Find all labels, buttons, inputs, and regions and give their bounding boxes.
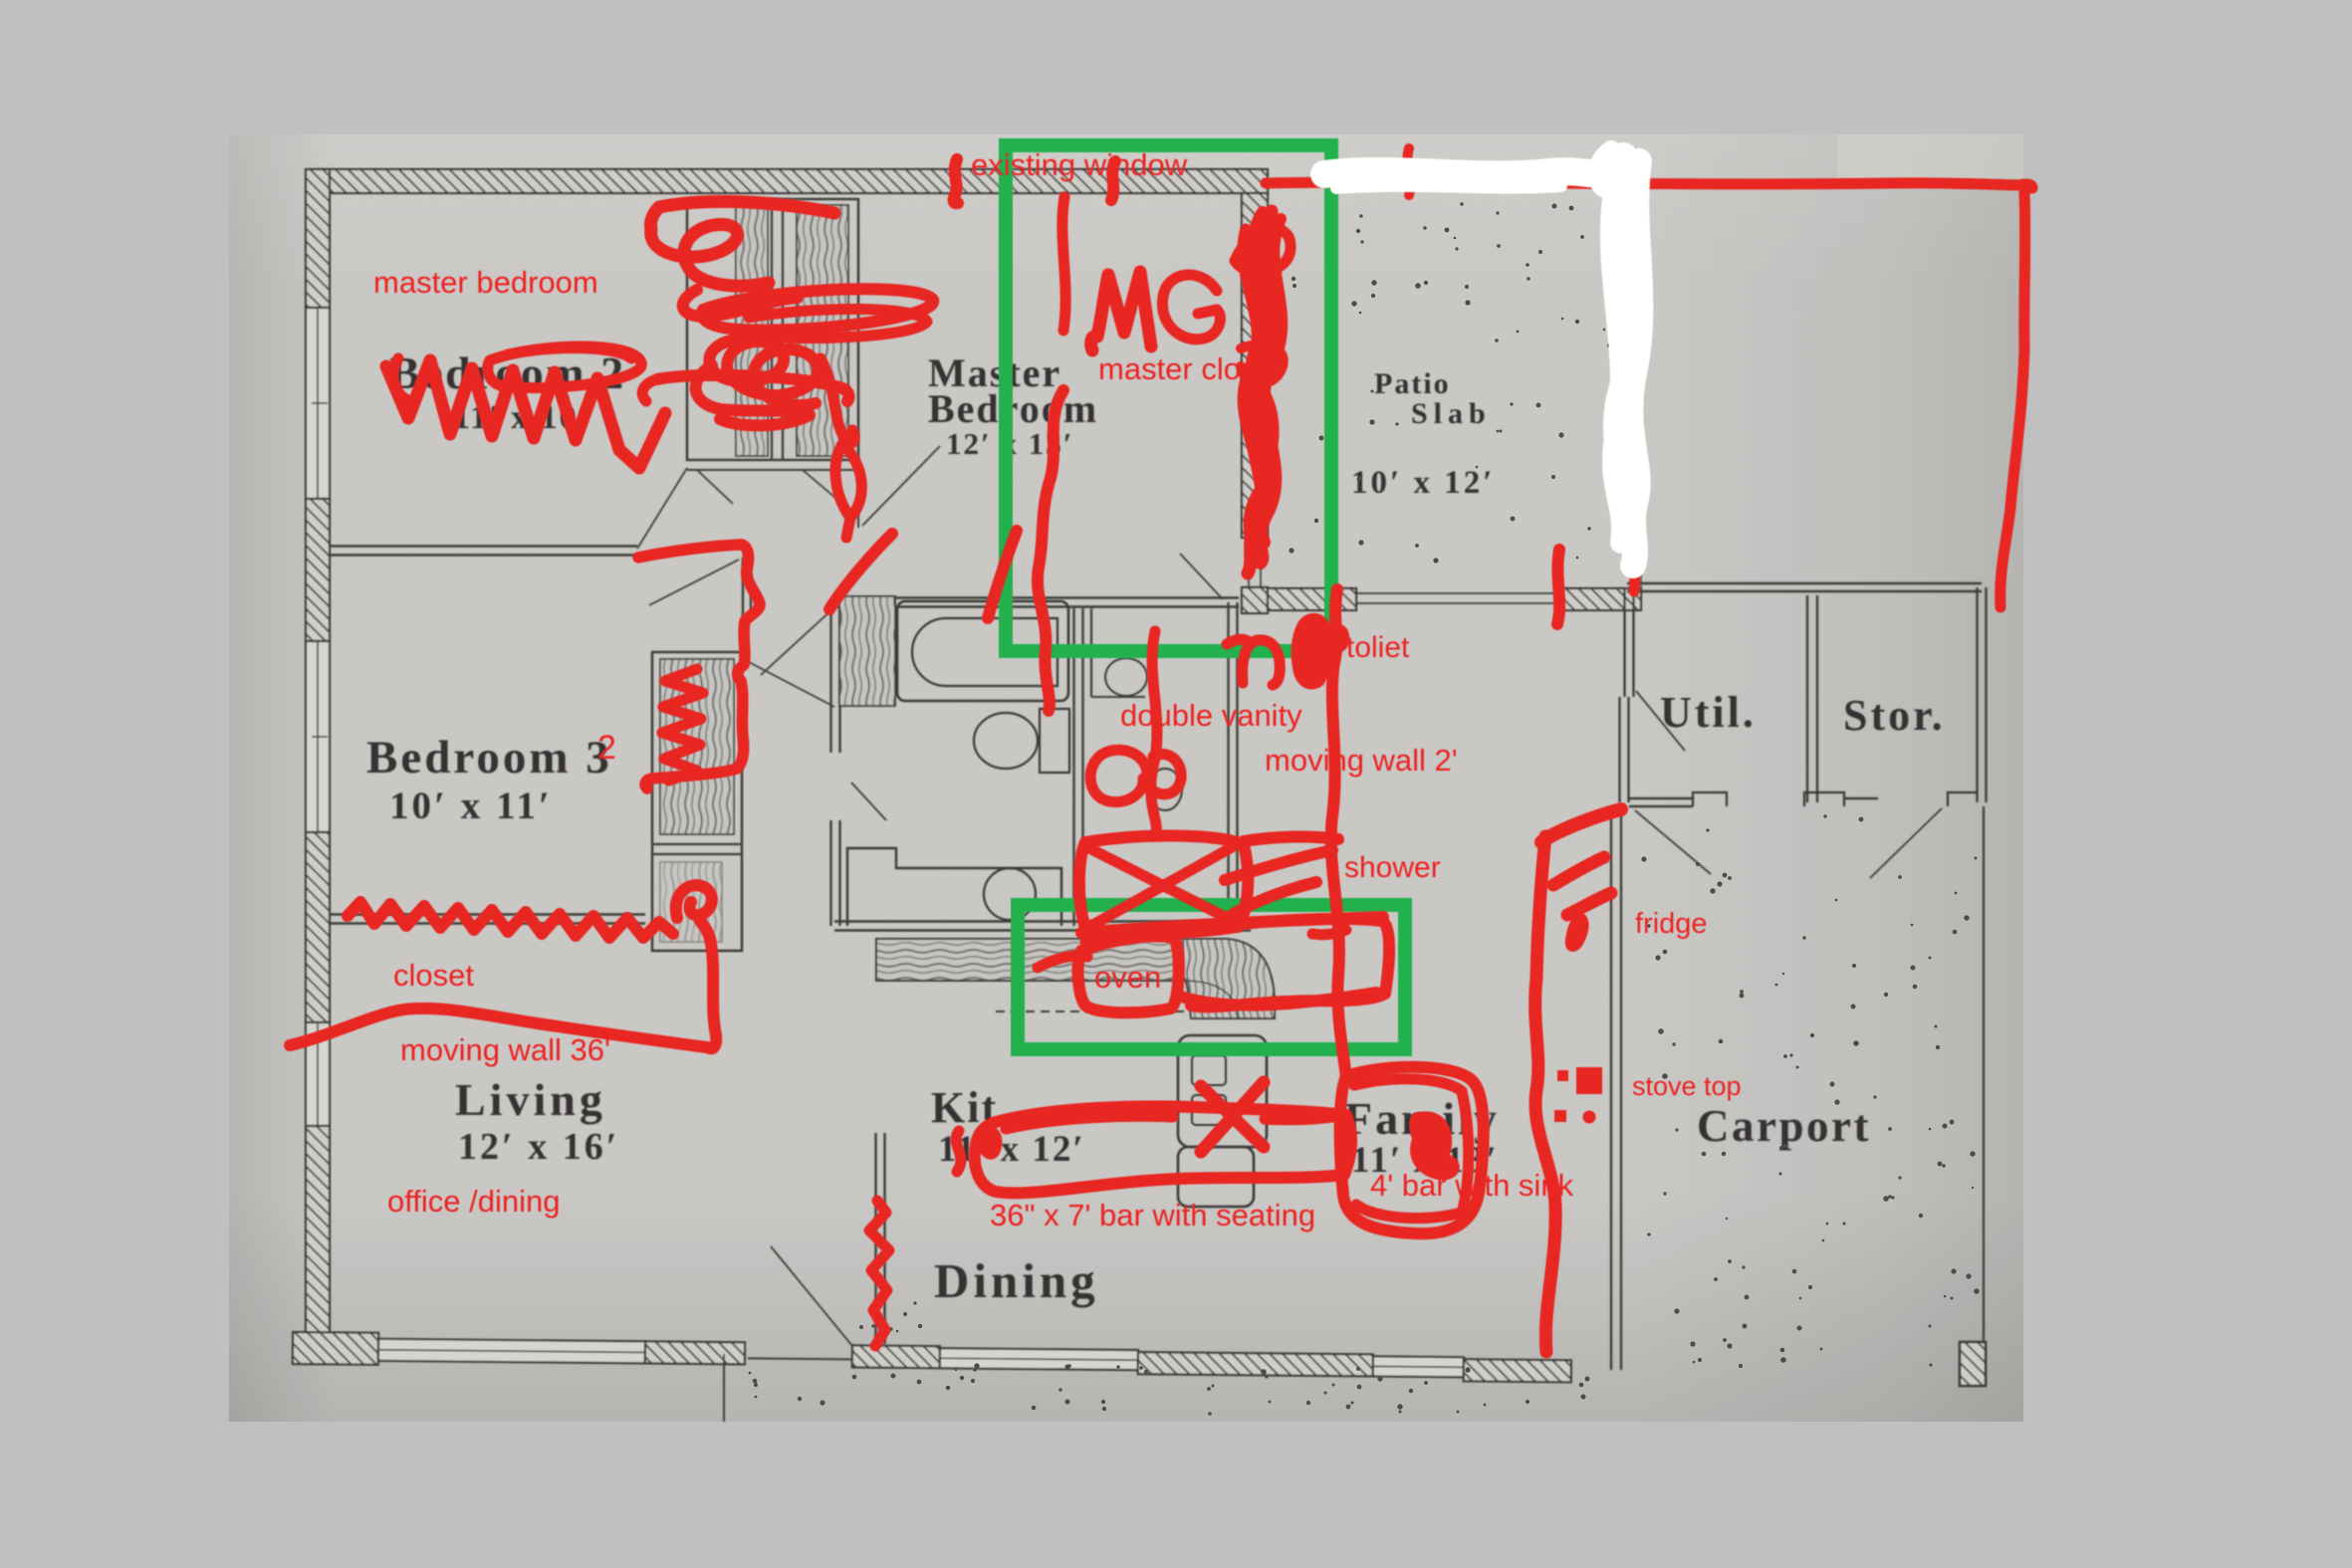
svg-text:Bedroom 3: Bedroom 3 bbox=[366, 732, 612, 784]
svg-text:Slab: Slab bbox=[1411, 397, 1492, 430]
svg-text:10′ x 11′: 10′ x 11′ bbox=[389, 784, 553, 827]
svg-text:10′ x 12′: 10′ x 12′ bbox=[1351, 465, 1496, 501]
svg-text:Dining: Dining bbox=[934, 1253, 1099, 1308]
svg-text:Util.: Util. bbox=[1660, 688, 1757, 737]
svg-text:closet: closet bbox=[393, 958, 474, 993]
svg-text:36" x 7' bar with seating: 36" x 7' bar with seating bbox=[990, 1198, 1315, 1232]
svg-text:office /dining: office /dining bbox=[387, 1184, 561, 1219]
svg-text:double vanity: double vanity bbox=[1120, 698, 1302, 733]
svg-text:toliet: toliet bbox=[1346, 631, 1410, 664]
svg-text:stove top: stove top bbox=[1632, 1071, 1742, 1101]
svg-text:master bedroom: master bedroom bbox=[373, 265, 598, 300]
svg-text:Patio: Patio bbox=[1374, 367, 1451, 400]
svg-text:12′ x 16′: 12′ x 16′ bbox=[458, 1126, 619, 1168]
svg-text:fridge: fridge bbox=[1635, 908, 1708, 940]
svg-text:oven: oven bbox=[1094, 960, 1161, 995]
svg-text:moving wall 36': moving wall 36' bbox=[400, 1032, 610, 1067]
svg-text:Carport: Carport bbox=[1697, 1101, 1871, 1151]
svg-text:shower: shower bbox=[1344, 851, 1441, 884]
svg-text:Living: Living bbox=[455, 1074, 606, 1125]
svg-text:Stor.: Stor. bbox=[1843, 691, 1946, 740]
svg-text:existing window: existing window bbox=[971, 147, 1188, 182]
svg-text:moving wall 2': moving wall 2' bbox=[1265, 743, 1458, 778]
svg-text:2: 2 bbox=[597, 729, 616, 767]
svg-text:Bedroom: Bedroom bbox=[928, 386, 1098, 431]
